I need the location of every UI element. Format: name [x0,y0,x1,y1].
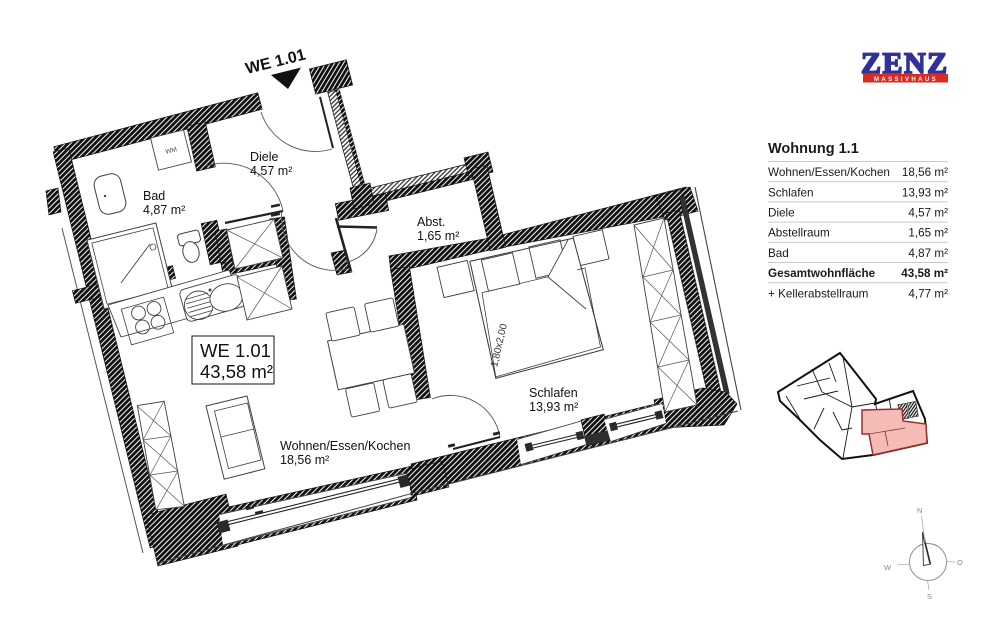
svg-text:Wohnen/Essen/Kochen: Wohnen/Essen/Kochen [280,439,410,453]
svg-text:Wohnen/Essen/Kochen: Wohnen/Essen/Kochen [768,166,890,179]
svg-text:Diele: Diele [250,150,279,164]
svg-text:W: W [884,563,892,572]
svg-text:4,57 m²: 4,57 m² [908,207,948,220]
svg-text:S: S [927,592,932,601]
svg-text:Abst.: Abst. [417,215,446,229]
svg-text:Schlafen: Schlafen [768,186,813,199]
svg-text:4,87 m²: 4,87 m² [908,247,948,260]
svg-text:Wohnung 1.1: Wohnung 1.1 [768,141,859,157]
svg-text:1,65 m²: 1,65 m² [417,229,459,243]
svg-text:N: N [917,506,922,515]
svg-text:Gesamtwohnfläche: Gesamtwohnfläche [768,267,876,280]
svg-text:13,93 m²: 13,93 m² [902,186,948,199]
svg-text:1,65 m²: 1,65 m² [908,227,948,240]
svg-text:4,87 m²: 4,87 m² [143,203,185,217]
svg-text:WE 1.01: WE 1.01 [200,340,271,361]
svg-text:43,58 m²: 43,58 m² [901,267,948,280]
svg-text:18,56 m²: 18,56 m² [902,166,948,179]
svg-text:13,93 m²: 13,93 m² [529,400,578,414]
svg-text:Bad: Bad [768,247,789,260]
svg-text:O: O [957,558,963,567]
svg-text:MASSIVHAUS: MASSIVHAUS [874,77,938,83]
svg-text:WE 1.01: WE 1.01 [244,47,308,78]
svg-text:4,57 m²: 4,57 m² [250,164,292,178]
svg-text:43,58 m²: 43,58 m² [200,361,273,382]
svg-text:18,56 m²: 18,56 m² [280,453,329,467]
svg-text:Bad: Bad [143,189,165,203]
svg-text:Diele: Diele [768,207,795,220]
svg-text:+ Kellerabstellraum: + Kellerabstellraum [768,287,868,300]
svg-text:Abstellraum: Abstellraum [768,227,830,240]
svg-text:4,77 m²: 4,77 m² [908,287,948,300]
svg-text:Schlafen: Schlafen [529,386,578,400]
